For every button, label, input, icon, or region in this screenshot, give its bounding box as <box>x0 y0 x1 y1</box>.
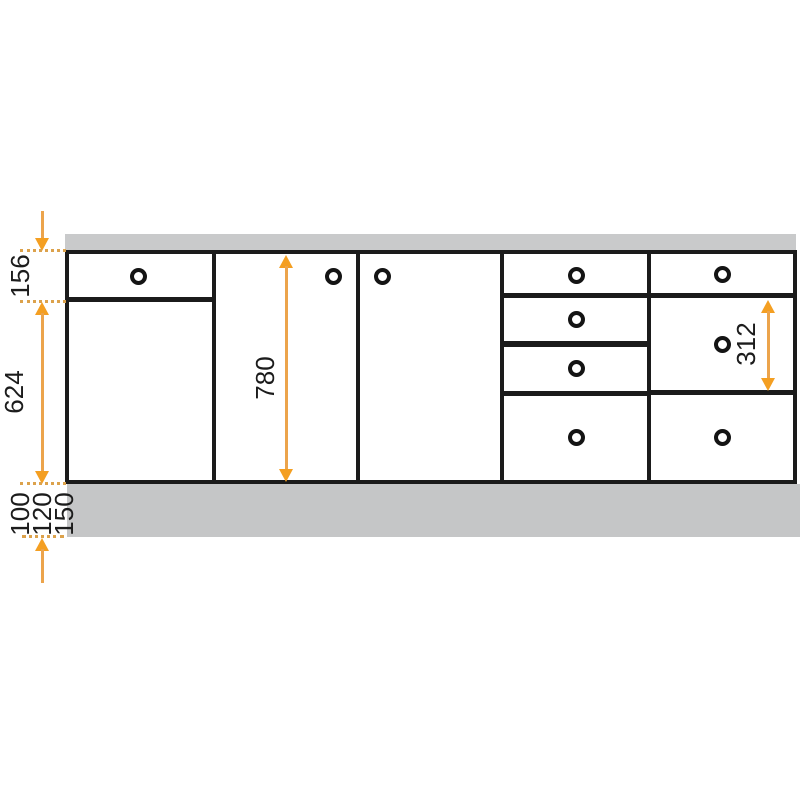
dim-label-624: 624 <box>1 370 27 413</box>
extension-dash-line <box>20 249 66 252</box>
section-divider <box>647 252 651 482</box>
drawer-divider <box>504 391 647 396</box>
dim-label-150: 150 <box>51 492 77 535</box>
drawer-divider <box>504 341 647 347</box>
section-divider <box>500 252 504 482</box>
drawer-divider <box>69 297 212 302</box>
section-divider <box>212 252 216 482</box>
knob-icon <box>325 268 342 285</box>
plinth-panel <box>67 484 800 537</box>
dim-label-780: 780 <box>252 356 278 399</box>
dimension-arrow-shaft <box>285 266 288 472</box>
knob-icon <box>374 268 391 285</box>
knob-icon <box>568 267 585 284</box>
dim-label-156: 156 <box>7 254 33 297</box>
extension-dash-line <box>20 482 66 485</box>
countertop-panel <box>65 234 796 250</box>
knob-icon <box>568 360 585 377</box>
arrow-down-icon <box>761 378 775 391</box>
dim-label-312: 312 <box>733 322 759 365</box>
arrow-down-icon <box>279 469 293 482</box>
knob-icon <box>130 268 147 285</box>
knob-icon <box>568 311 585 328</box>
dimension-arrow-shaft <box>767 311 770 381</box>
knob-icon <box>568 429 585 446</box>
dimension-arrow-shaft <box>41 211 44 241</box>
knob-icon <box>714 336 731 353</box>
dimension-arrow-shaft <box>41 313 44 473</box>
dimension-arrow-shaft <box>41 549 44 583</box>
knob-icon <box>714 266 731 283</box>
knob-icon <box>714 429 731 446</box>
cabinet-dimension-diagram: 156 624 100 120 150 780 312 <box>0 0 800 800</box>
drawer-divider <box>651 293 793 298</box>
section-divider <box>356 252 360 482</box>
cabinet-carcass <box>65 250 797 484</box>
drawer-divider <box>504 293 647 298</box>
